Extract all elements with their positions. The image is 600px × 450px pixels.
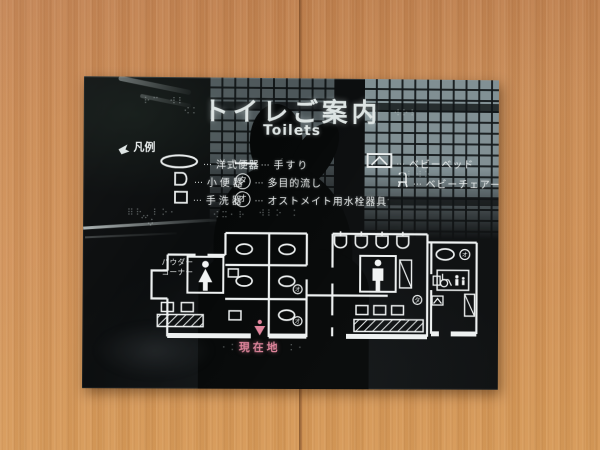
urinal-icon: [173, 171, 190, 191]
legend-label: ベビーチェアー: [426, 175, 499, 190]
legend-dots: …: [396, 158, 405, 168]
legend-dots: …: [194, 176, 203, 186]
legend-dots: …: [261, 159, 270, 169]
legend-item-ostomate-fixture: オ … オストメイト用水栓器具: [235, 191, 388, 208]
toilet-guide-sign-panel: トイレご案内 Toilets 凡例 … 洋式便器 … 小便器: [82, 76, 499, 390]
powder-corner-label-line1: パウダー: [162, 257, 194, 267]
legend-item-handrail: … 手すり: [235, 155, 309, 172]
powder-corner-label-line2: コーナー: [162, 267, 194, 276]
wheelchair-icon: [440, 274, 451, 287]
toilet-floor-plan: オ オ パウダー コーナー: [129, 226, 479, 348]
womens-room: [157, 244, 302, 328]
legend-dots: …: [203, 158, 212, 168]
ostomate-icon: オ: [235, 191, 251, 207]
braille-dots: ⠪⠅: [183, 107, 200, 117]
braille-dots: ⠺⠇⠕⠀⠅: [258, 209, 301, 219]
multipurpose-mark: タ: [238, 177, 247, 186]
toilet-symbol: [279, 310, 295, 320]
braille-dots: ⠇⠂: [280, 158, 294, 166]
braille-dots: ⠪⠭⠂⠗: [213, 211, 247, 221]
legend-dots: …: [255, 176, 264, 186]
multipurpose-mark-text: タ: [414, 296, 420, 304]
toilet-symbol: [279, 276, 295, 286]
baby-bed-icon: [367, 151, 393, 173]
sign-content: トイレご案内 Toilets 凡例 … 洋式便器 … 小便器: [82, 76, 499, 390]
braille-dots: ⠗⠅⠂: [369, 196, 395, 206]
man-pictogram-icon: [372, 259, 383, 290]
basin-symbol: [392, 306, 404, 315]
door-swing: [465, 294, 475, 316]
western-toilet-icon: [159, 153, 199, 172]
legend-label: 多目的流し: [267, 174, 322, 189]
toilet-symbol: [236, 244, 252, 254]
ostomate-mark-text: オ: [295, 319, 301, 326]
legend-label: ベビーベッド: [409, 155, 474, 170]
legend-pointer-icon: [118, 139, 130, 158]
adult-child-icons: [455, 275, 464, 285]
legend-dots: …: [254, 194, 263, 204]
braille-dots: ⠇⠺⠕: [407, 171, 432, 181]
mens-room: [334, 231, 423, 332]
ostomate-mark: オ: [238, 195, 247, 204]
ostomate-mark-text: オ: [462, 252, 468, 259]
sink-counter: [157, 314, 203, 326]
current-location-pin: [254, 320, 265, 336]
basin-symbol: [356, 306, 368, 315]
legend-header: 凡例: [133, 139, 155, 155]
accessible-room: [432, 249, 475, 316]
woman-pictogram-icon: [198, 261, 212, 291]
baby-bed-symbol: [432, 296, 443, 305]
photo-of-toilet-sign: トイレご案内 Toilets 凡例 … 洋式便器 … 小便器: [0, 0, 600, 450]
handrail-icon: [235, 162, 257, 164]
toilet-symbol: [279, 244, 295, 254]
sink-counter: [354, 319, 423, 331]
door-swing: [400, 260, 412, 288]
multipurpose-sink-icon: タ: [235, 173, 251, 189]
braille-dots: ⠿⠗⠀⠇⠕⠂: [127, 208, 178, 218]
toilet-symbol: [436, 249, 454, 260]
braille-dots: ⠗⠉⠀⠺⠇: [144, 97, 187, 107]
hand-wash-basin-icon: [173, 189, 189, 208]
basin-symbol: [228, 269, 238, 277]
basin-symbol: [181, 303, 193, 312]
basin-symbol: [374, 306, 386, 315]
legend-item-baby-bed: … ベビーベッド: [367, 154, 475, 171]
legend-item-multipurpose-sink: タ … 多目的流し: [235, 173, 322, 190]
legend-dots: …: [193, 194, 202, 204]
basin-symbol: [229, 311, 241, 320]
braille-dots: ⠺⠕⠇: [393, 109, 418, 119]
current-location-label: 現在地: [204, 339, 315, 355]
ostomate-mark-text: オ: [295, 287, 301, 294]
